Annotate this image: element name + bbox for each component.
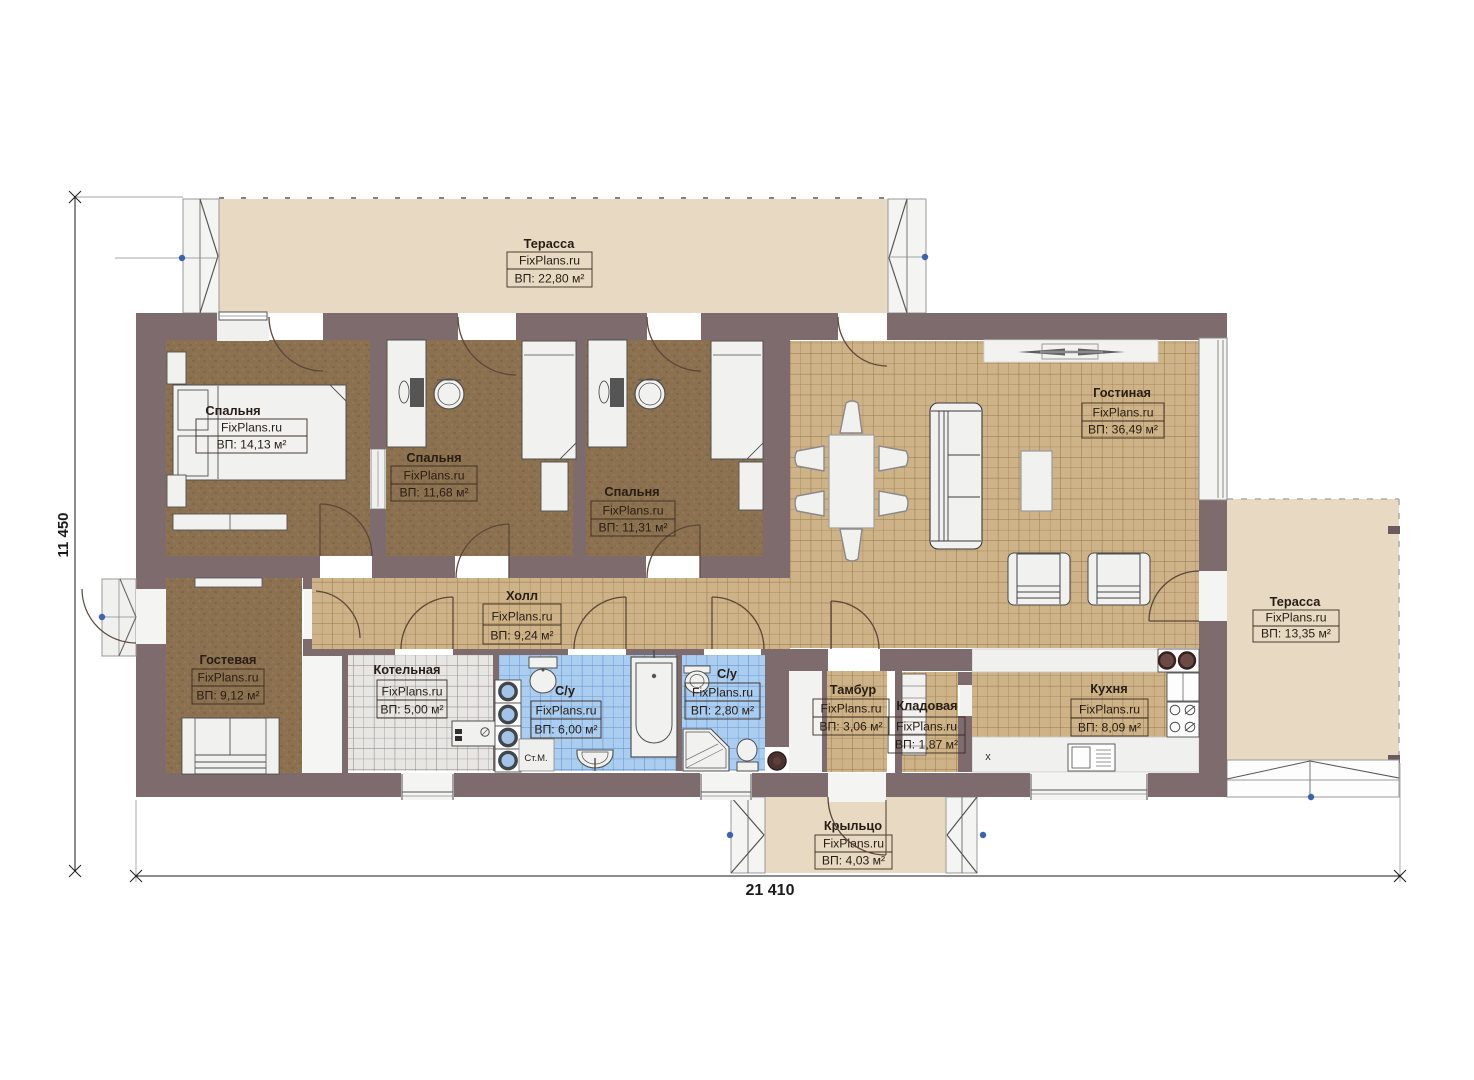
svg-text:Тамбур: Тамбур	[830, 682, 877, 697]
svg-text:FixPlans.ru: FixPlans.ru	[1093, 406, 1154, 420]
svg-text:ВП: 22,80 м²: ВП: 22,80 м²	[515, 272, 585, 286]
svg-text:ВП: 1,87 м²: ВП: 1,87 м²	[895, 738, 958, 752]
svg-text:Гостиная: Гостиная	[1093, 385, 1151, 400]
svg-text:FixPlans.ru: FixPlans.ru	[603, 504, 664, 518]
svg-text:FixPlans.ru: FixPlans.ru	[692, 686, 753, 700]
svg-text:Спальня: Спальня	[205, 403, 260, 418]
svg-text:ВП: 11,31 м²: ВП: 11,31 м²	[598, 521, 667, 535]
svg-text:ВП: 5,00 м²: ВП: 5,00 м²	[380, 703, 443, 717]
svg-text:ВП: 9,24 м²: ВП: 9,24 м²	[490, 629, 553, 643]
svg-text:Кладовая: Кладовая	[896, 698, 957, 713]
svg-text:ВП: 3,06 м²: ВП: 3,06 м²	[819, 720, 882, 734]
svg-text:Котельная: Котельная	[373, 662, 440, 677]
svg-text:FixPlans.ru: FixPlans.ru	[1266, 611, 1327, 625]
svg-text:Ст.М.: Ст.М.	[524, 753, 547, 764]
svg-text:FixPlans.ru: FixPlans.ru	[404, 469, 465, 483]
svg-text:ВП: 6,00 м²: ВП: 6,00 м²	[534, 723, 597, 737]
svg-text:21 410: 21 410	[746, 882, 795, 899]
svg-text:FixPlans.ru: FixPlans.ru	[198, 671, 259, 685]
svg-text:Спальня: Спальня	[604, 484, 659, 499]
svg-text:ВП: 8,09 м²: ВП: 8,09 м²	[1078, 721, 1141, 735]
svg-text:FixPlans.ru: FixPlans.ru	[382, 685, 443, 699]
svg-text:FixPlans.ru: FixPlans.ru	[492, 610, 553, 624]
svg-text:Терасса: Терасса	[524, 236, 576, 251]
svg-text:ВП: 9,12 м²: ВП: 9,12 м²	[196, 689, 259, 703]
svg-text:x: x	[985, 751, 991, 763]
svg-text:С/у: С/у	[717, 666, 738, 681]
svg-text:Холл: Холл	[506, 588, 538, 603]
svg-text:Гостевая: Гостевая	[199, 652, 256, 667]
svg-text:Спальня: Спальня	[406, 450, 461, 465]
svg-text:ВП: 36,49 м²: ВП: 36,49 м²	[1088, 423, 1158, 437]
svg-text:ВП: 14,13 м²: ВП: 14,13 м²	[217, 438, 287, 452]
svg-text:ВП: 13,35 м²: ВП: 13,35 м²	[1261, 627, 1331, 641]
svg-text:FixPlans.ru: FixPlans.ru	[1079, 703, 1140, 717]
svg-text:ВП: 11,68 м²: ВП: 11,68 м²	[399, 486, 468, 500]
svg-text:ВП: 4,03 м²: ВП: 4,03 м²	[822, 854, 885, 868]
svg-text:Кухня: Кухня	[1090, 681, 1127, 696]
svg-text:FixPlans.ru: FixPlans.ru	[221, 421, 282, 435]
svg-text:FixPlans.ru: FixPlans.ru	[519, 254, 580, 268]
svg-text:С/у: С/у	[555, 683, 576, 698]
svg-text:FixPlans.ru: FixPlans.ru	[821, 702, 882, 716]
svg-text:ВП: 2,80 м²: ВП: 2,80 м²	[691, 704, 754, 718]
svg-text:FixPlans.ru: FixPlans.ru	[896, 720, 957, 734]
svg-text:FixPlans.ru: FixPlans.ru	[823, 837, 884, 851]
svg-text:11 450: 11 450	[55, 512, 72, 557]
svg-text:Терасса: Терасса	[1270, 594, 1322, 609]
svg-text:FixPlans.ru: FixPlans.ru	[536, 704, 597, 718]
